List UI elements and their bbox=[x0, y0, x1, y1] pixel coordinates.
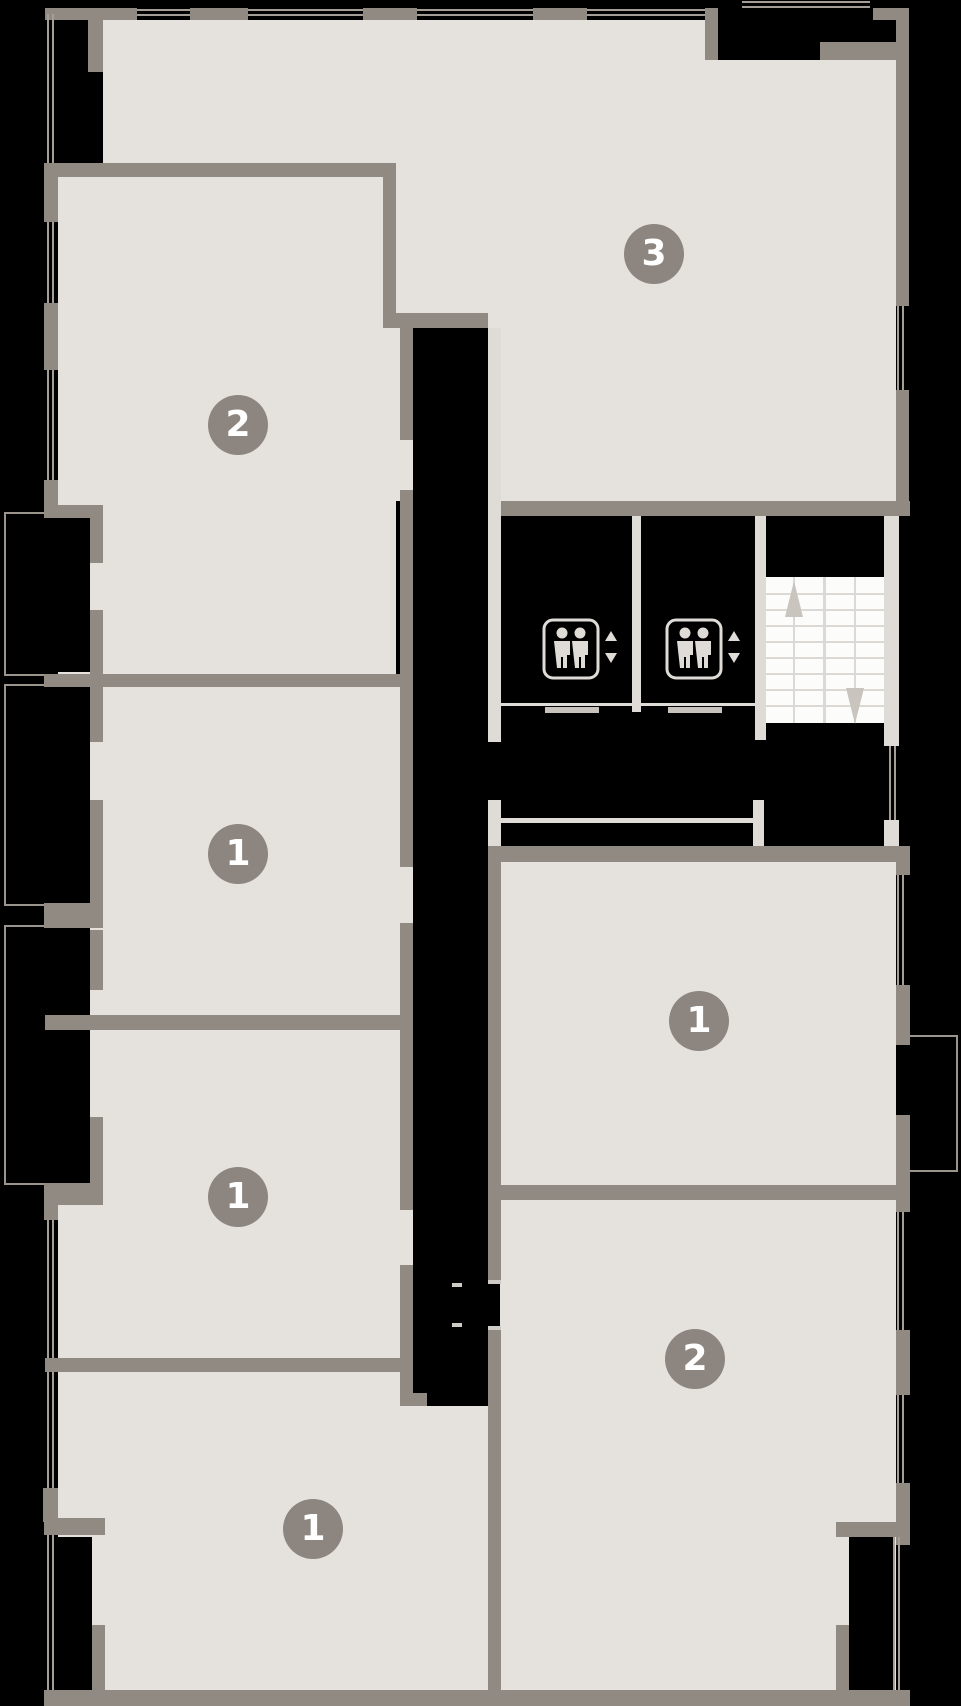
unit-label: 2 bbox=[682, 1341, 707, 1377]
balcony-bottom-left bbox=[58, 1537, 92, 1690]
wall bbox=[896, 985, 910, 1045]
door-mark bbox=[452, 1323, 462, 1327]
core-wall bbox=[488, 328, 501, 742]
stair-flight-divider bbox=[823, 577, 826, 723]
window bbox=[897, 1212, 904, 1330]
window bbox=[897, 306, 904, 390]
wall bbox=[90, 800, 103, 903]
wall bbox=[44, 1518, 105, 1535]
wall-right-rooms-left bbox=[488, 862, 501, 1280]
core-wall bbox=[753, 800, 764, 846]
window bbox=[47, 1372, 54, 1488]
wall bbox=[363, 8, 417, 20]
wall bbox=[90, 610, 103, 674]
wall bbox=[90, 518, 103, 563]
core-wall bbox=[884, 516, 899, 746]
door-mark bbox=[488, 1326, 501, 1330]
wall bbox=[44, 505, 103, 518]
elevator-door bbox=[545, 707, 599, 713]
wall bbox=[44, 1205, 58, 1220]
wall-unit3-bottom bbox=[488, 501, 910, 516]
unit-label: 2 bbox=[225, 407, 250, 443]
wall bbox=[896, 1200, 910, 1212]
wall bbox=[44, 303, 58, 370]
wall bbox=[705, 8, 718, 60]
balcony-outline bbox=[4, 925, 58, 1185]
window bbox=[897, 875, 904, 985]
elevator-icon bbox=[542, 618, 600, 680]
stair-tread bbox=[766, 625, 884, 627]
wall-right-rooms-top bbox=[488, 846, 910, 862]
elevator-door-line bbox=[501, 703, 632, 706]
unit-label: 1 bbox=[686, 1003, 711, 1039]
balcony-outline-right bbox=[908, 1035, 958, 1172]
unit-badge-3-top-right[interactable]: 3 bbox=[624, 224, 684, 284]
stairs-up-arrow-icon bbox=[785, 581, 803, 617]
wall-divider-right bbox=[488, 1185, 910, 1200]
window bbox=[47, 222, 54, 303]
floor-unit-2-right bbox=[500, 1200, 896, 1690]
wall bbox=[820, 42, 896, 60]
unit-badge-1-bottom-left[interactable]: 1 bbox=[283, 1499, 343, 1559]
wall-jog bbox=[400, 1393, 427, 1406]
core-wall bbox=[488, 800, 501, 846]
wall-unit2-right bbox=[383, 163, 396, 313]
wall-corridor bbox=[400, 923, 413, 1210]
core-wall bbox=[884, 820, 899, 846]
unit-badge-1-left-middle[interactable]: 1 bbox=[208, 824, 268, 884]
wall bbox=[896, 8, 909, 306]
window bbox=[417, 9, 533, 16]
balcony-outline bbox=[4, 684, 58, 906]
stair-tread bbox=[766, 609, 884, 611]
door-mark bbox=[488, 1280, 501, 1284]
elevator-door-line bbox=[641, 703, 755, 706]
wall-corridor bbox=[400, 328, 413, 440]
core-wall-shaft-divider bbox=[632, 516, 641, 712]
stair-tread bbox=[766, 705, 884, 707]
wall bbox=[836, 1625, 849, 1690]
wall bbox=[44, 1183, 103, 1205]
wall bbox=[88, 14, 103, 72]
wall bbox=[533, 8, 587, 20]
elevator-door bbox=[668, 707, 722, 713]
wall bbox=[836, 1522, 910, 1537]
unit-badge-1-left-lower[interactable]: 1 bbox=[208, 1167, 268, 1227]
wall bbox=[896, 1330, 910, 1395]
elevator-down-indicator-icon bbox=[605, 653, 617, 663]
wall-corridor bbox=[400, 490, 413, 867]
unit-badge-2-top-left[interactable]: 2 bbox=[208, 395, 268, 455]
stair-tread bbox=[766, 673, 884, 675]
wall bbox=[90, 687, 103, 742]
stair-tread bbox=[766, 689, 884, 691]
core-wall bbox=[755, 516, 766, 740]
elevator-up-indicator-icon bbox=[605, 631, 617, 641]
wall bbox=[90, 1117, 103, 1183]
wall bbox=[43, 1488, 58, 1522]
balcony-bottom-right bbox=[849, 1537, 893, 1690]
wall-corridor bbox=[400, 1265, 413, 1397]
stair-tread bbox=[766, 593, 884, 595]
window bbox=[897, 1395, 904, 1483]
window bbox=[47, 1220, 54, 1358]
unit-label: 3 bbox=[641, 236, 666, 272]
window bbox=[893, 1537, 900, 1690]
wall-jog bbox=[383, 313, 488, 328]
unit-label: 1 bbox=[225, 1179, 250, 1215]
wall-divider bbox=[45, 1015, 413, 1030]
balcony-outline bbox=[4, 512, 58, 676]
wall-unit2-top bbox=[44, 163, 395, 177]
unit-badge-2-bottom-right[interactable]: 2 bbox=[665, 1329, 725, 1389]
window bbox=[137, 9, 190, 16]
window bbox=[47, 1535, 54, 1690]
wall bbox=[90, 930, 103, 990]
wall-divider bbox=[45, 1358, 400, 1372]
wall-bottom bbox=[44, 1690, 910, 1706]
stair-tread bbox=[766, 641, 884, 643]
wall bbox=[190, 8, 248, 20]
unit-label: 1 bbox=[300, 1511, 325, 1547]
window bbox=[889, 746, 896, 820]
window bbox=[587, 9, 705, 16]
stair-tread bbox=[766, 657, 884, 659]
elevator-down-indicator-icon bbox=[728, 653, 740, 663]
wall-divider bbox=[44, 674, 413, 687]
corridor bbox=[413, 328, 488, 1397]
wall bbox=[896, 390, 909, 516]
floor-plan: 2 3 1 1 1 1 2 bbox=[0, 0, 961, 1706]
wall-right-rooms-left bbox=[488, 1330, 501, 1690]
floor-unit-1-bottom bbox=[58, 1372, 488, 1690]
door-mark bbox=[452, 1283, 462, 1287]
wall bbox=[44, 903, 103, 928]
window bbox=[47, 14, 54, 163]
wall bbox=[92, 1625, 105, 1690]
unit-badge-1-right-middle[interactable]: 1 bbox=[669, 991, 729, 1051]
core-wall-lobby bbox=[501, 818, 753, 823]
elevator-up-indicator-icon bbox=[728, 631, 740, 641]
unit-label: 1 bbox=[225, 836, 250, 872]
window bbox=[248, 9, 363, 16]
window bbox=[47, 370, 54, 480]
window bbox=[742, 1, 870, 8]
elevator-icon bbox=[665, 618, 723, 680]
stairs-down-arrow-icon bbox=[846, 688, 864, 724]
